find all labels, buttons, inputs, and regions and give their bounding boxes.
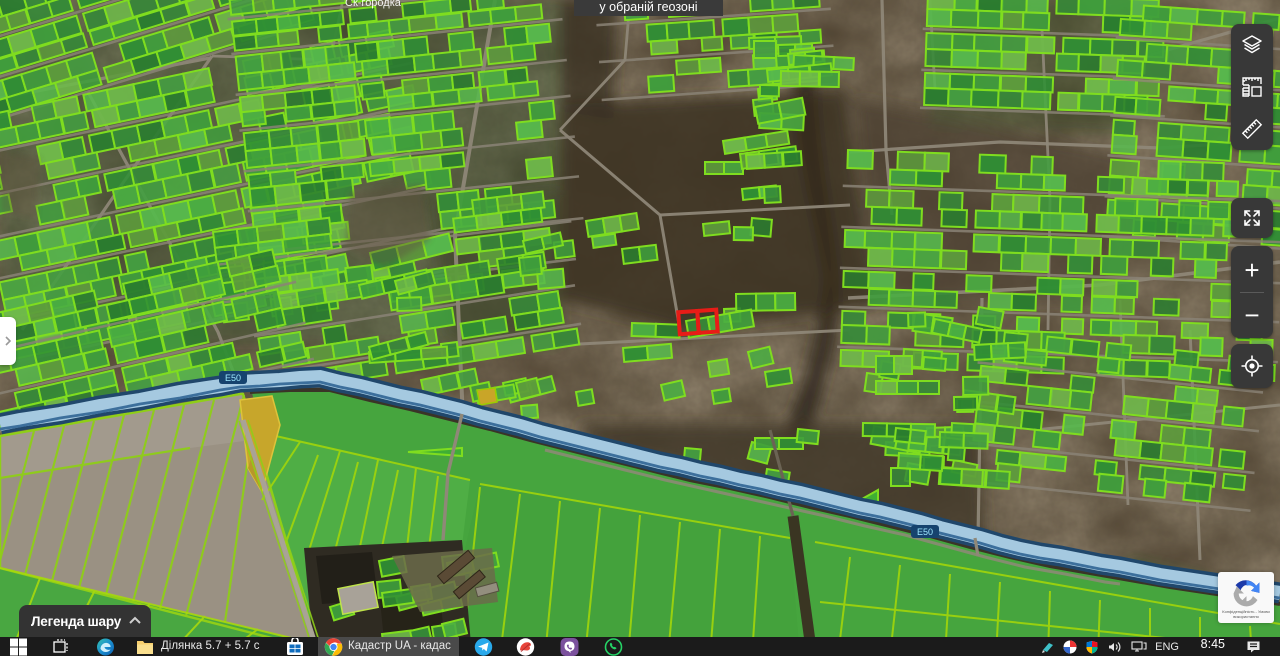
svg-text:E50: E50	[225, 373, 241, 383]
svg-text:Ск-городка: Ск-городка	[345, 0, 402, 9]
svg-text:E50: E50	[917, 527, 933, 537]
